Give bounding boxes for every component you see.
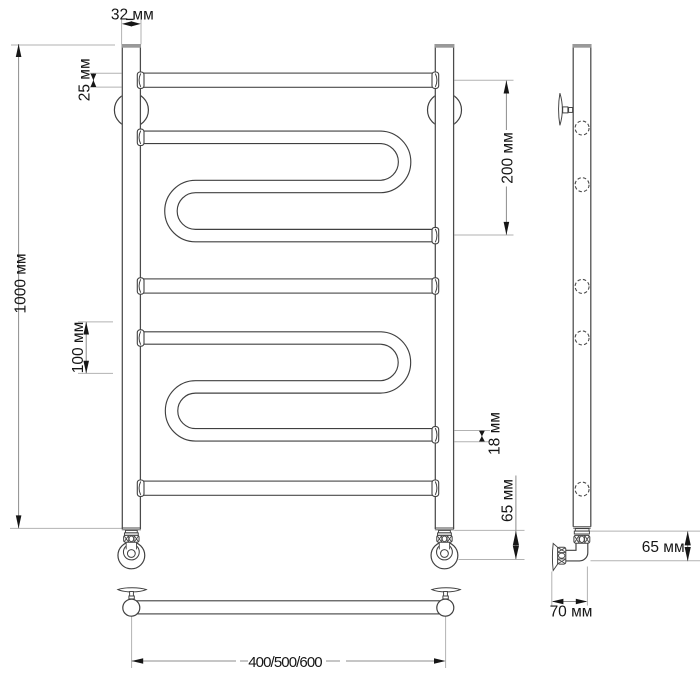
svg-text:1000 мм: 1000 мм [13, 253, 30, 313]
svg-text:65 мм: 65 мм [642, 539, 685, 556]
svg-text:65 мм: 65 мм [499, 479, 516, 522]
svg-text:25 мм: 25 мм [77, 58, 94, 101]
svg-text:200 мм: 200 мм [500, 132, 517, 183]
svg-text:100 мм: 100 мм [70, 322, 87, 373]
svg-text:70 мм: 70 мм [550, 604, 593, 621]
svg-text:400/500/600: 400/500/600 [248, 654, 322, 671]
svg-text:18 мм: 18 мм [486, 412, 503, 455]
svg-text:32 мм: 32 мм [111, 6, 154, 23]
